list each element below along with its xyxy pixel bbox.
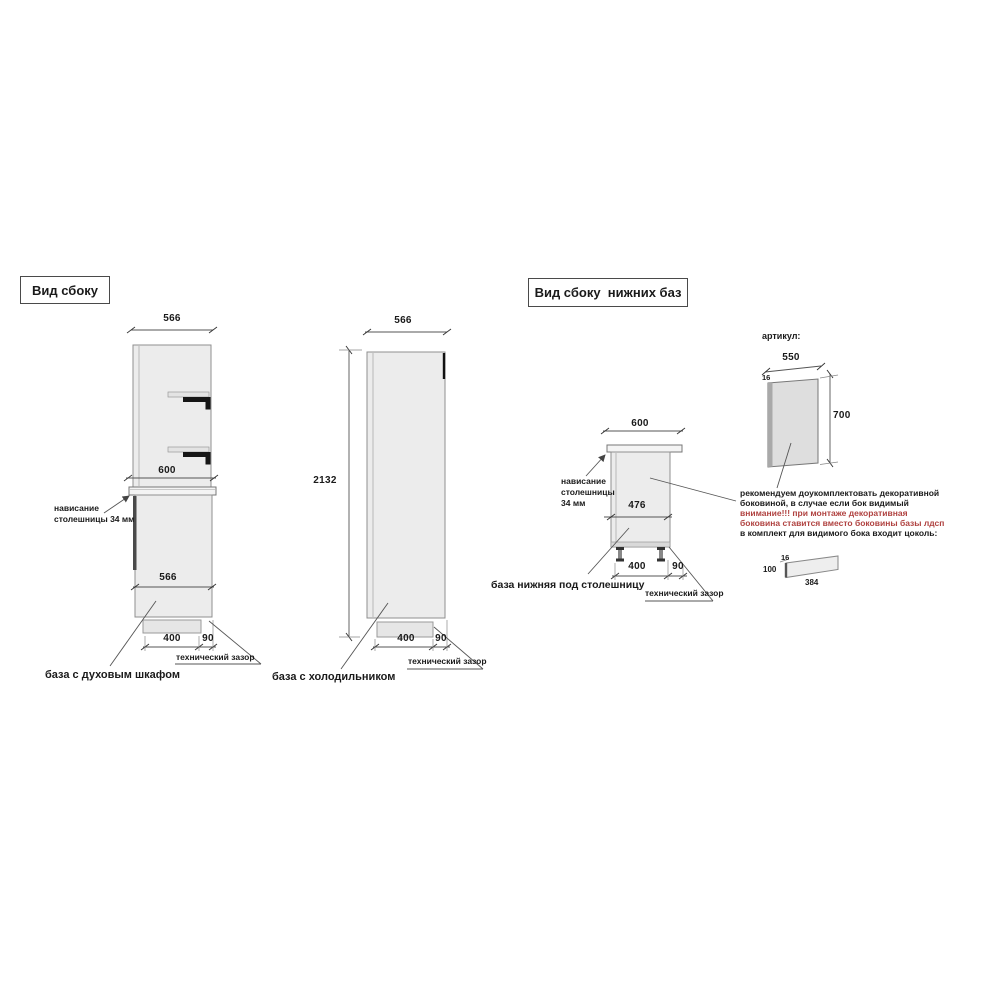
note-line-5: в комплект для видимого бока входит цоко… [740,528,940,538]
fridge-dim-gap: 90 [430,633,452,644]
oven-dim-gap: 90 [197,633,219,644]
plinth-dim-height: 100 [763,565,776,574]
lower-overhang-line2: столешницы [561,487,615,498]
lower-overhang-line3: 34 мм [561,498,615,509]
note-line-4-warning: боковина ставится вместо боковины базы л… [740,518,940,528]
left-section-title-text: Вид сбоку [32,283,98,298]
article-label: артикул: [762,331,800,341]
oven-overhang-line2: столешницы 34 мм [54,514,134,525]
oven-countertop [129,487,216,495]
oven-plinth [143,620,201,633]
lower-base-overhang-label: нависание столешницы 34 мм [561,476,615,509]
fridge-dim-plinth: 400 [391,633,421,644]
right-section-title: Вид сбоку нижних баз [528,278,688,307]
oven-shelf-1 [168,392,209,397]
fridge-gap-label: технический зазор [408,656,487,667]
fridge-dim-top-width: 566 [381,315,425,326]
lower-base-countertop [607,445,682,452]
oven-base-drawing [104,327,261,666]
lower-base-overhang-arrow [586,455,605,476]
side-panel-dim-width: 550 [777,352,805,363]
diagram-page: Вид сбоку Вид сбоку нижних баз 566 600 5… [0,0,1000,1000]
lower-base-caption: база нижняя под столешницу [491,579,644,591]
oven-base-lower-body [135,495,212,617]
oven-overhang-label: нависание столешницы 34 мм [54,503,134,525]
oven-shelf-2-bracket-end [206,457,211,465]
fridge-dim-height: 2132 [306,475,344,486]
oven-shelf-1-bracket-end [206,402,211,410]
fridge-caption: база с холодильником [272,671,395,683]
oven-shelf-1-bracket [183,397,211,402]
side-panel-face [768,379,818,467]
lower-base-gap-label: технический зазор [645,588,724,599]
lower-base-bottom-panel [611,542,670,547]
lower-base-dim-gap: 90 [667,561,689,572]
oven-shelf-2 [168,447,209,452]
oven-gap-label: технический зазор [176,652,255,663]
oven-dim-counter-width: 600 [145,465,189,476]
note-line-3-warning: внимание!!! при монтаже декоративная [740,508,940,518]
note-line-1: рекомендуем доукомплектовать декоративно… [740,488,940,498]
plinth-dim-thickness: 16 [781,553,789,562]
right-section-title-text: Вид сбоку нижних баз [535,285,682,300]
oven-caption: база с духовым шкафом [45,669,180,681]
side-panel-edge [768,383,773,467]
oven-dim-body-width: 566 [146,572,190,583]
lower-base-dim-plinth: 400 [622,561,652,572]
oven-dim-top-width: 566 [150,313,194,324]
oven-shelf-2-bracket [183,452,211,457]
lower-base-dim-top-width: 600 [618,418,662,429]
plinth-dim-length: 384 [805,578,818,587]
lower-base-dim-depth: 476 [616,500,658,511]
left-section-title: Вид сбоку [20,276,110,304]
side-panel-dim-height: 700 [833,410,859,421]
fridge-base-body [367,352,445,618]
fridge-base-drawing [339,329,483,669]
plinth-piece-face [786,556,838,578]
oven-overhang-line1: нависание [54,503,134,514]
lower-overhang-line1: нависание [561,476,615,487]
lower-base-legs [616,547,665,562]
note-line-2: боковиной, в случае если бок видимый [740,498,940,508]
lower-base-drawing [586,428,736,601]
side-panel-drawing [762,363,838,488]
oven-dim-plinth: 400 [157,633,187,644]
side-panel-dim-thickness: 16 [762,373,770,382]
